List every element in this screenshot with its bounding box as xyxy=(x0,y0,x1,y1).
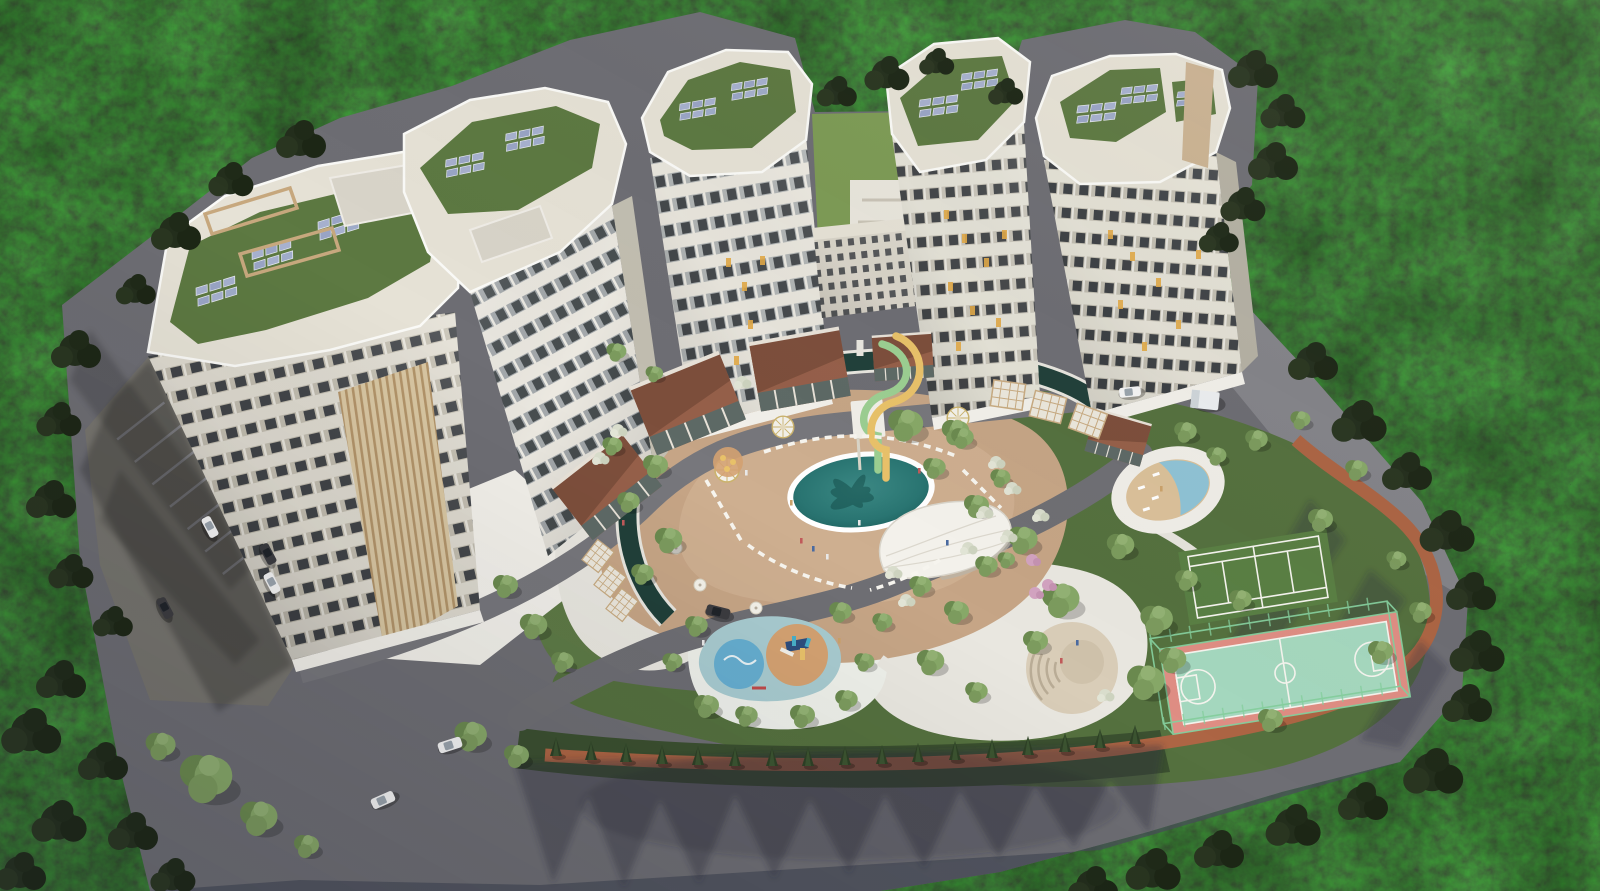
lighting-overlay xyxy=(0,0,1600,891)
aerial-render xyxy=(0,0,1600,891)
